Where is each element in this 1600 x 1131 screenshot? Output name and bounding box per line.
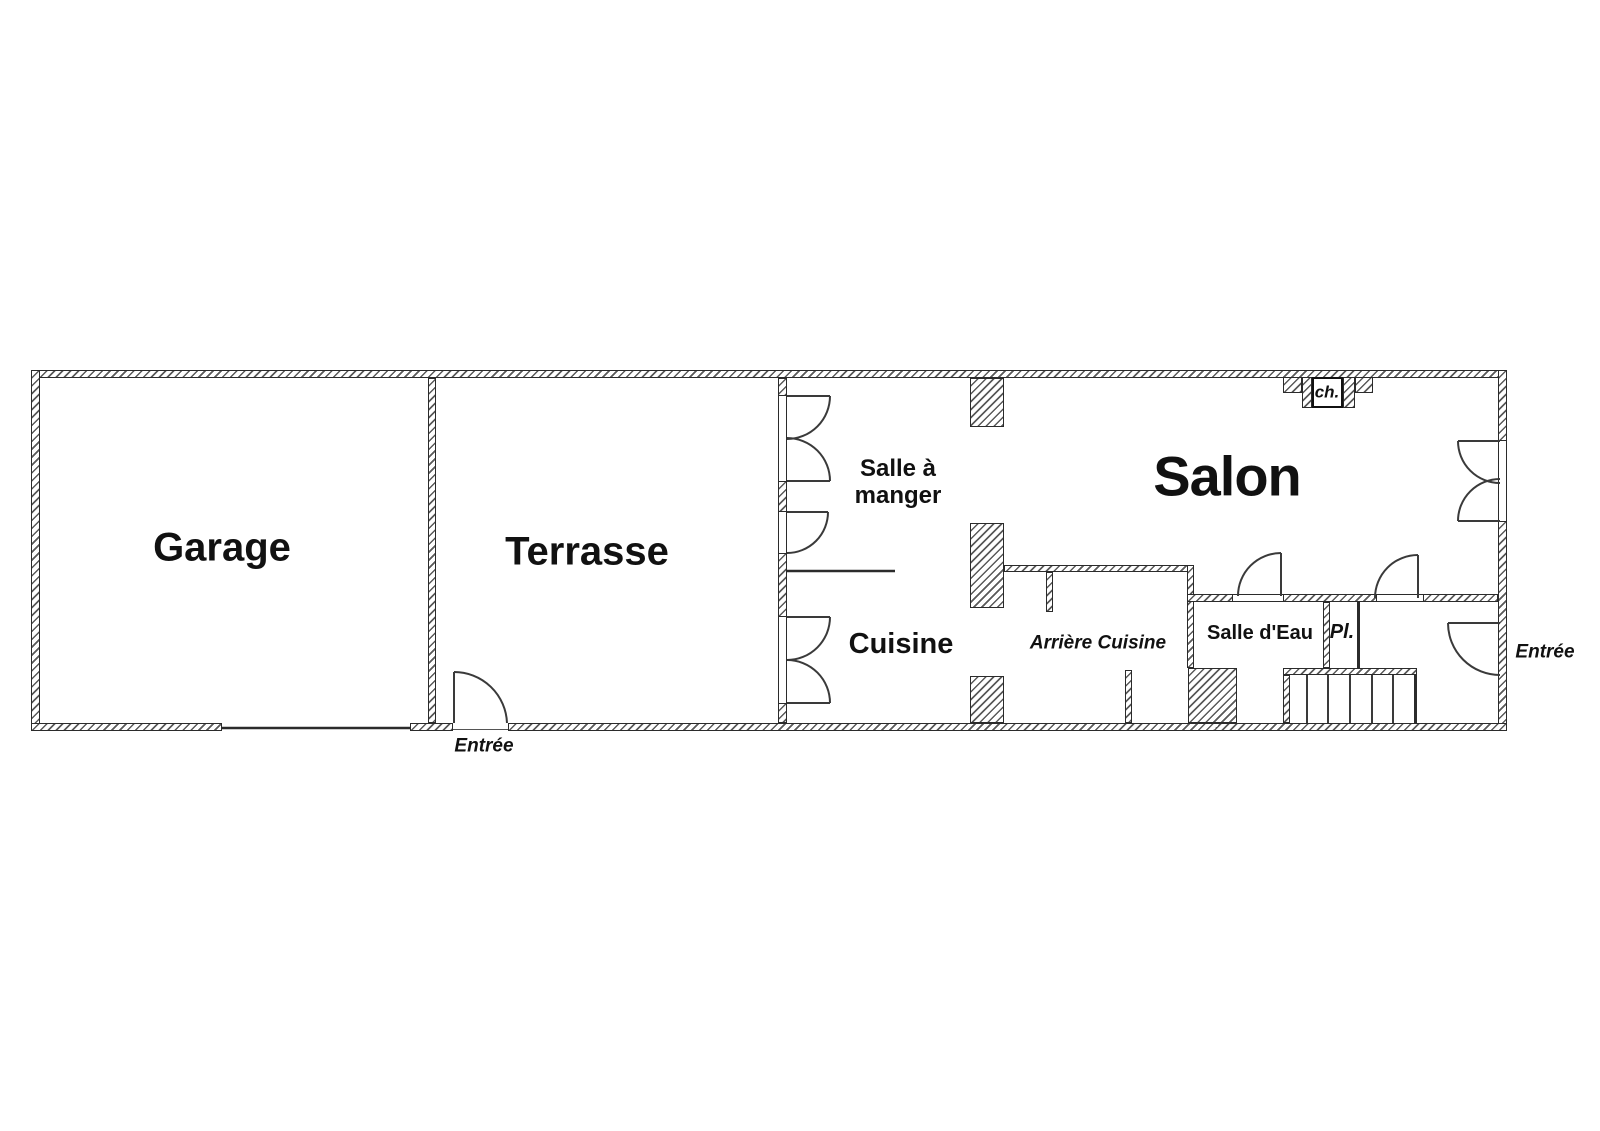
wall-outer-right-upper	[1498, 370, 1507, 441]
door-double-salle-a-manger	[787, 396, 830, 481]
door-salon-left	[1238, 553, 1281, 596]
wall-outer-right-lower	[1498, 521, 1507, 731]
wall-outer-left	[31, 370, 40, 731]
wall-placard-right	[1357, 602, 1360, 668]
room-label-cuisine: Cuisine	[849, 628, 954, 660]
chimney-hatch-right-outer	[1355, 377, 1373, 393]
chimney-label: ch.	[1315, 382, 1340, 401]
wall-terrasse-seg-1	[778, 378, 787, 396]
opening-salon-east-door	[1498, 441, 1507, 521]
pillar-middle	[970, 523, 1004, 608]
chimney-hatch-left-outer	[1283, 377, 1302, 393]
wall-salon-divider-seg-2	[1283, 594, 1377, 602]
wall-salon-divider-seg-1	[1187, 594, 1233, 602]
door-single-salle-a-manger	[787, 512, 828, 553]
chimney-hatch-left-inner	[1302, 377, 1312, 408]
floor-plan: Garage Terrasse Salle à manger Cuisine A…	[0, 0, 1600, 1131]
chimney-hatch-right-inner	[1343, 377, 1355, 408]
wall-salon-divider-seg-3	[1423, 594, 1498, 602]
wall-arriere-cuisine-stub-bottom	[1125, 670, 1132, 723]
door-main-entry	[1448, 623, 1500, 675]
wall-stairs-left	[1283, 675, 1290, 723]
wall-garage-terrasse	[428, 378, 436, 723]
pillar-bottom	[970, 676, 1004, 723]
wall-terrasse-seg-3	[778, 553, 787, 617]
wall-outer-bottom-main	[508, 723, 1507, 731]
room-label-salle-a-manger: Salle à manger	[855, 456, 942, 510]
wall-arriere-cuisine-top	[1004, 565, 1193, 572]
door-double-salon-east	[1458, 441, 1500, 521]
wall-outer-bottom-garage	[31, 723, 222, 731]
wall-terrasse-seg-2	[778, 481, 787, 512]
room-label-placard: Pl.	[1330, 621, 1354, 643]
staircase-treads	[1307, 675, 1393, 723]
entree-label-terrasse: Entrée	[454, 735, 513, 756]
wall-stairs-top	[1283, 668, 1417, 675]
wall-stairs-right	[1414, 675, 1417, 723]
wall-outer-bottom-terrasse-stub	[410, 723, 453, 731]
room-label-terrasse: Terrasse	[505, 530, 669, 575]
wall-terrasse-band	[778, 378, 787, 723]
pillar-top	[970, 378, 1004, 427]
room-label-arriere-cuisine: Arrière Cuisine	[1030, 632, 1166, 653]
door-salon-right	[1375, 555, 1418, 598]
door-double-cuisine	[787, 617, 830, 703]
door-terrasse-entry	[454, 672, 507, 723]
room-label-garage: Garage	[153, 526, 291, 571]
room-label-salle-d-eau: Salle d'Eau	[1207, 622, 1313, 644]
wall-arriere-cuisine-stub-top	[1046, 572, 1053, 612]
wall-block-salle-eau	[1188, 668, 1237, 723]
wall-arriere-cuisine-right	[1187, 565, 1194, 668]
entree-label-main: Entrée	[1515, 641, 1574, 662]
wall-terrasse-seg-4	[778, 703, 787, 723]
room-label-salon: Salon	[1153, 446, 1300, 509]
